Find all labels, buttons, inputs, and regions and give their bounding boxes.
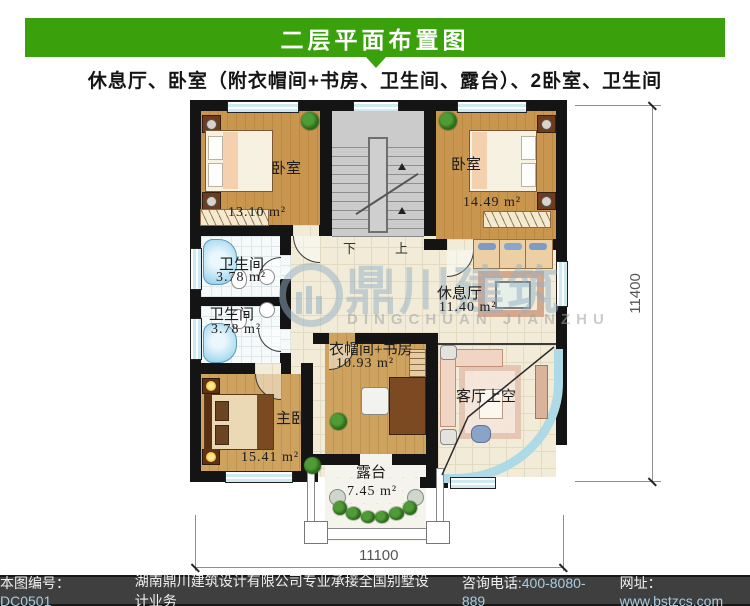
nightstand [202, 192, 221, 210]
blanket [257, 395, 273, 449]
window-lounge-right [556, 261, 568, 307]
footer-bar: 本图编号：DC0501 湖南鼎川建筑设计有限公司专业承接全国别墅设计业务 咨询电… [0, 575, 750, 606]
sofa-lounge [473, 239, 553, 269]
dim-line-bottom [195, 567, 564, 568]
headboard [205, 395, 212, 449]
label-living-void: 客厅上空 [456, 385, 516, 406]
door-gap-bedroom-tr [447, 239, 473, 250]
sofa-cushion [504, 243, 522, 250]
area-master: 15.41 m² [241, 450, 299, 466]
nightstand [537, 192, 556, 210]
sofa-cushion [529, 243, 547, 250]
plant [304, 457, 321, 474]
terrace-plant [375, 511, 389, 523]
phone: 咨询电话:400-8080-889 [462, 573, 594, 606]
area-study: 10.93 m² [336, 356, 394, 372]
area-bath-1: 3.78 m² [216, 270, 266, 286]
floor-plan-page: 二层平面布置图 休息厅、卧室（附衣帽间+书房、卫生间、露台）、2卧室、卫生间 [0, 0, 750, 606]
sofa-cushion [478, 243, 496, 250]
plant [301, 112, 319, 130]
area-terrace: 7.45 m² [347, 484, 397, 500]
dim-bottom-value: 11100 [359, 547, 399, 564]
staircase [332, 111, 424, 237]
bedside-lamp [202, 449, 220, 465]
tv-table [495, 281, 531, 309]
stair-down-label: 下 [343, 238, 356, 257]
window-bedroom-tl-top [227, 101, 299, 113]
sofa-seat-divider [499, 240, 500, 268]
desk-chair [361, 387, 389, 415]
sheet-number: 本图编号：DC0501 [0, 573, 109, 606]
terrace-railing-left [307, 468, 315, 526]
sink [259, 302, 275, 318]
window-bath-2 [190, 318, 202, 360]
area-bedroom-tl: 13.10 m² [228, 205, 286, 221]
pillow [215, 425, 229, 445]
bed-bedroom-tl [205, 130, 273, 192]
stair-arrow-up [398, 163, 406, 170]
page-title: 二层平面布置图 [25, 18, 725, 57]
label-terrace: 露台 [356, 461, 386, 482]
door-gap-master [255, 363, 281, 374]
website: 网址：www.bstzcs.com [620, 573, 750, 606]
bed-master [204, 394, 274, 450]
area-bedroom-tr: 14.49 m² [463, 195, 521, 211]
stair-arrow-down [398, 207, 406, 214]
terrace-plant [361, 511, 375, 523]
phone-label: 咨询电话: [462, 575, 522, 591]
terrace-pier-right [426, 521, 450, 544]
wall-stair-left [320, 100, 332, 236]
website-label: 网址： [620, 575, 662, 591]
label-bedroom-tl: 卧室 [271, 157, 301, 178]
terrace-plant [403, 501, 417, 515]
terrace-plant [389, 507, 404, 520]
stair-up-label: 上 [395, 238, 408, 257]
door-gap-bedroom-tl [293, 225, 319, 236]
dim-ext-right-bottom [575, 481, 661, 482]
nightstand [537, 115, 556, 133]
sheet-number-value: DC0501 [0, 593, 51, 606]
stair-stringer [368, 137, 388, 233]
bedside-lamp [202, 378, 220, 394]
plant [439, 112, 457, 130]
company-name: 湖南鼎川建筑设计有限公司专业承接全国别墅设计业务 [135, 571, 436, 606]
dim-right-value: 11400 [627, 273, 644, 314]
pillow [208, 136, 223, 160]
door-gap-bath-2 [280, 329, 291, 353]
desk [389, 377, 426, 435]
plan-summary: 休息厅、卧室（附衣帽间+书房、卫生间、露台）、2卧室、卫生间 [0, 66, 750, 93]
label-bath-2: 卫生间 [209, 303, 254, 324]
wardrobe-bedroom-tr [483, 211, 551, 228]
window-bath-1 [190, 248, 202, 290]
terrace-railing-bottom [327, 528, 427, 540]
dim-ext-bottom-left [195, 515, 196, 571]
sheet-number-label: 本图编号： [0, 575, 70, 591]
area-lounge: 11.40 m² [439, 300, 497, 316]
floor-plan: 鼎川建筑 DINGCHUAN JIANZHU 卧室 13.10 m² 卧室 14… [183, 97, 713, 579]
terrace-pier-left [304, 521, 328, 544]
void-diagonal-line [438, 345, 556, 477]
wall-left [190, 100, 201, 482]
window-master-bottom [225, 471, 293, 483]
terrace-plant [333, 501, 347, 515]
plant [330, 413, 347, 430]
pillow [215, 401, 229, 421]
terrace-plant [346, 507, 361, 520]
label-bedroom-tr: 卧室 [451, 153, 481, 174]
pillow [521, 163, 536, 187]
pillow [208, 163, 223, 187]
door-gap-bath-1 [280, 255, 291, 279]
website-value: www.bstzcs.com [620, 593, 723, 606]
dim-ext-bottom-right [563, 515, 564, 571]
dim-ext-right-top [575, 105, 661, 106]
window-living-bottom [450, 477, 496, 489]
wall-stair-right [424, 100, 436, 236]
bed-cover [223, 132, 238, 189]
label-master: 主卧 [276, 407, 306, 428]
area-bath-2: 3.78 m² [211, 322, 261, 338]
window-bedroom-tr-top [457, 101, 527, 113]
dim-line-right [652, 105, 653, 482]
pillow [521, 136, 536, 160]
sofa-seat-divider [525, 240, 526, 268]
living-void-floor [438, 345, 556, 477]
